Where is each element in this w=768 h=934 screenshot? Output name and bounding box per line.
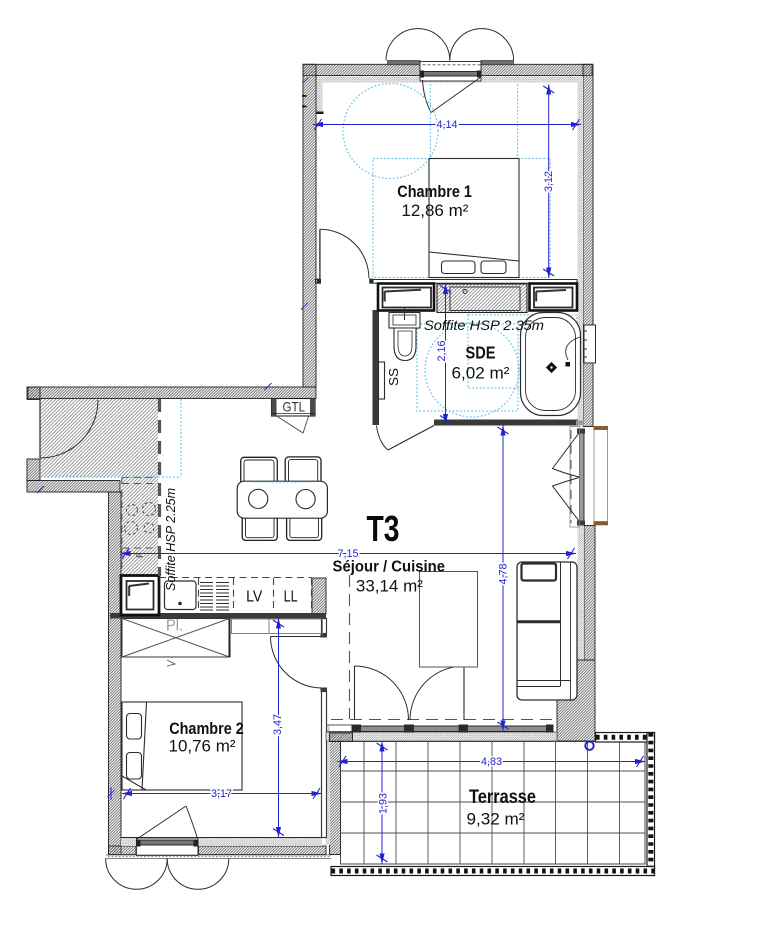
svg-text:Pl.: Pl.	[166, 618, 183, 635]
svg-text:4,78: 4,78	[498, 563, 510, 584]
svg-text:4,14: 4,14	[436, 119, 457, 131]
svg-text:SS: SS	[386, 368, 401, 386]
svg-text:7,15: 7,15	[337, 548, 358, 560]
svg-text:Chambre 2: Chambre 2	[169, 720, 244, 738]
svg-text:Terrasse: Terrasse	[469, 787, 536, 808]
svg-text:SDE: SDE	[466, 343, 496, 363]
svg-text:3,47: 3,47	[272, 714, 284, 735]
svg-text:Chambre 1: Chambre 1	[397, 183, 472, 201]
svg-text:Séjour / Cuisine: Séjour / Cuisine	[333, 559, 446, 576]
svg-text:4,83: 4,83	[481, 756, 502, 768]
svg-text:3,12: 3,12	[543, 171, 555, 192]
svg-text:2,16: 2,16	[436, 340, 448, 361]
svg-text:3,17: 3,17	[211, 788, 232, 800]
svg-text:9,32 m²: 9,32 m²	[467, 810, 525, 829]
svg-text:LV: LV	[246, 588, 262, 605]
svg-text:1,93: 1,93	[378, 793, 390, 814]
svg-text:Soffite HSP 2.35m: Soffite HSP 2.35m	[424, 318, 544, 333]
svg-text:T3: T3	[367, 508, 400, 549]
svg-text:Soffite HSP 2.25m: Soffite HSP 2.25m	[164, 488, 178, 591]
svg-text:LL: LL	[284, 588, 298, 605]
svg-text:GTL: GTL	[283, 399, 306, 415]
svg-text:6,02 m²: 6,02 m²	[452, 364, 510, 383]
svg-text:12,86 m²: 12,86 m²	[401, 201, 468, 220]
svg-text:F: F	[135, 552, 146, 558]
svg-text:33,14 m²: 33,14 m²	[356, 577, 423, 596]
svg-text:10,76 m²: 10,76 m²	[169, 737, 236, 756]
